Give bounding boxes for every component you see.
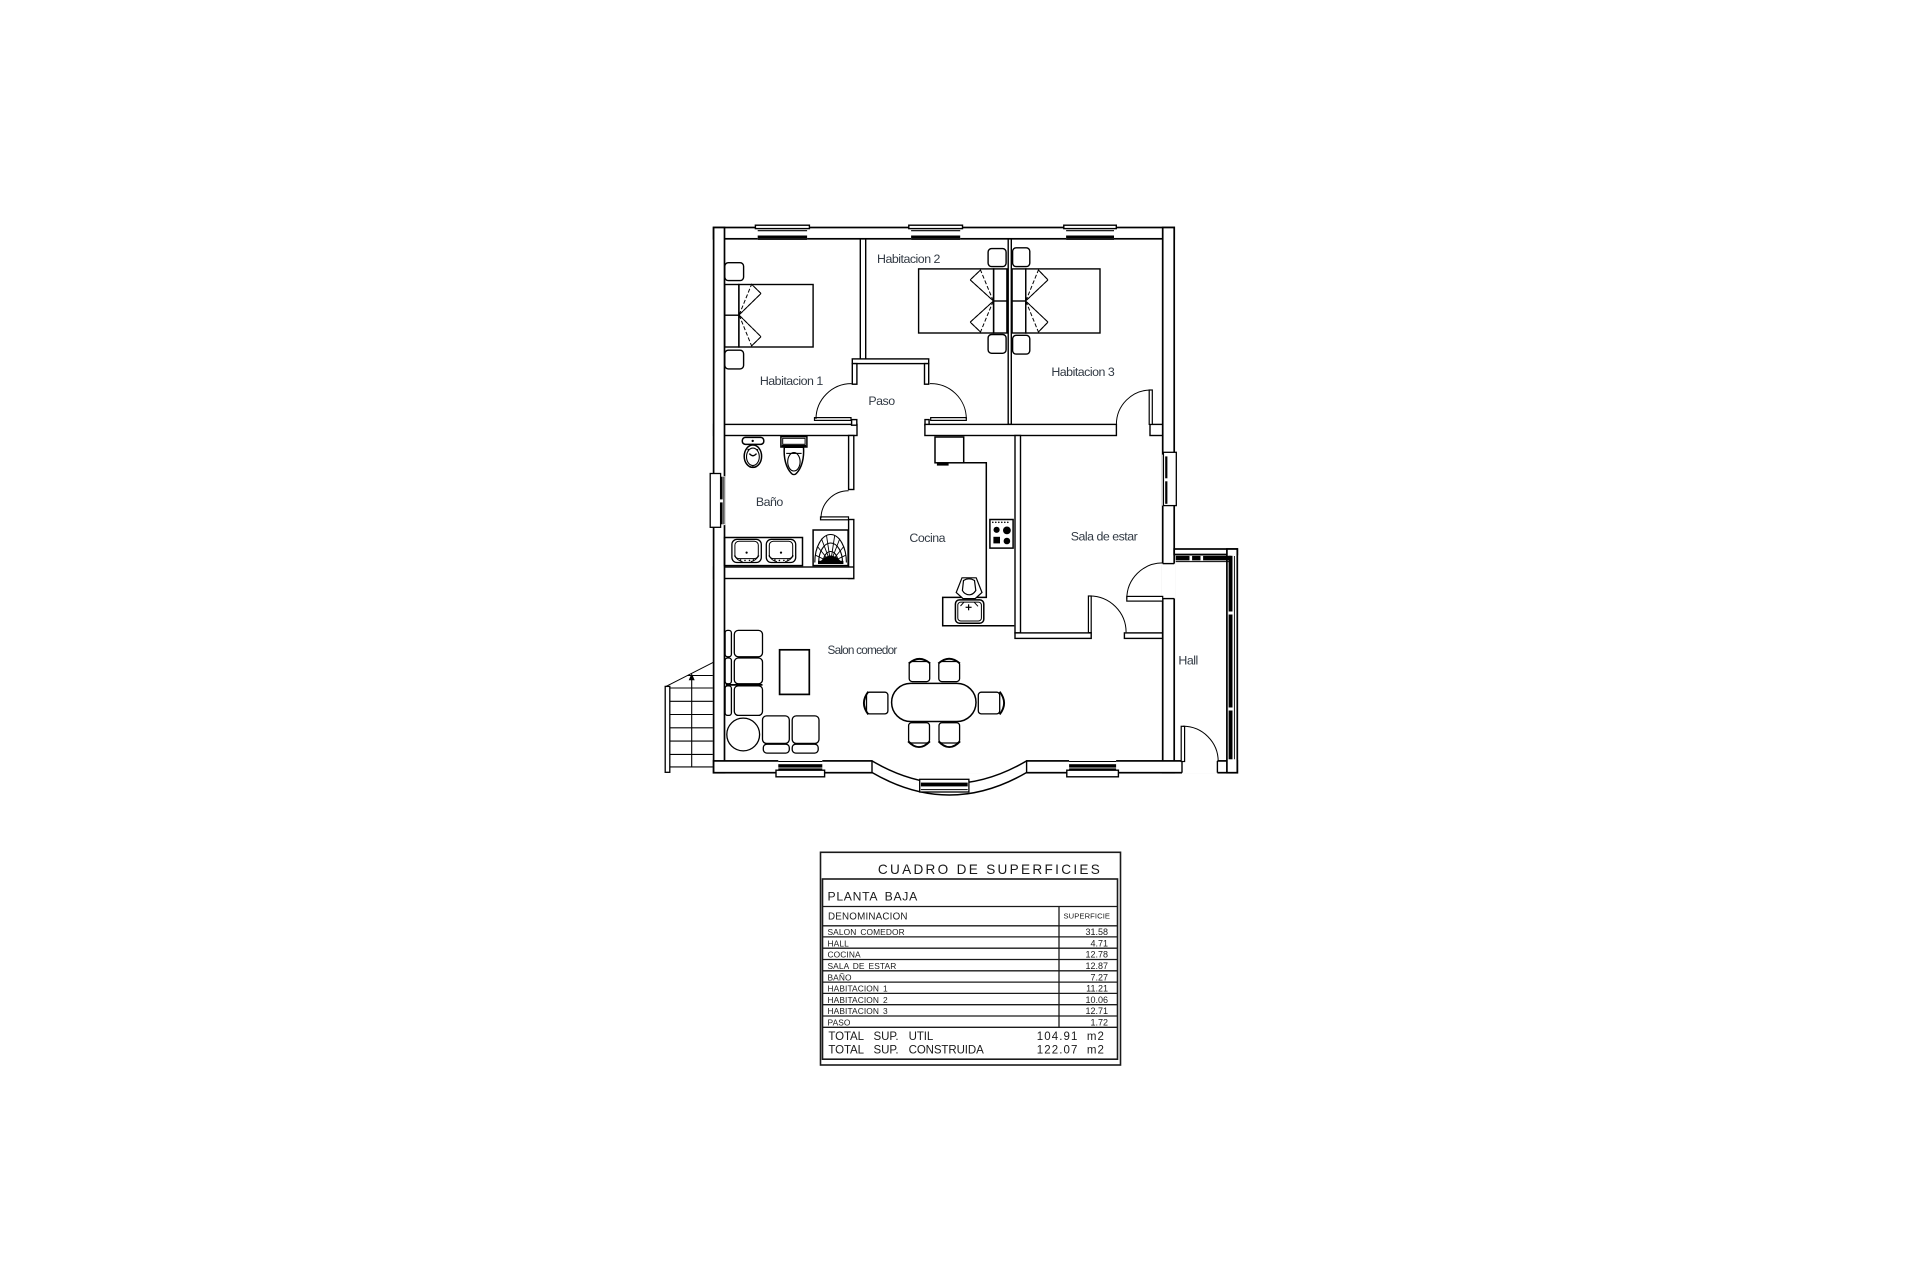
svg-text:10.06: 10.06: [1085, 995, 1108, 1005]
svg-text:TOTAL SUP. CONSTRUIDA: TOTAL SUP. CONSTRUIDA: [828, 1045, 984, 1057]
svg-text:Habitacion 2: Habitacion 2: [877, 252, 940, 266]
svg-text:12.71: 12.71: [1085, 1006, 1108, 1016]
svg-text:SUPERFICIE: SUPERFICIE: [1064, 911, 1111, 920]
svg-text:12.87: 12.87: [1085, 961, 1108, 971]
svg-text:4.71: 4.71: [1090, 938, 1108, 948]
svg-text:HABITACION 3: HABITACION 3: [828, 1006, 888, 1016]
svg-text:11.21: 11.21: [1086, 984, 1108, 994]
svg-text:HALL: HALL: [828, 938, 850, 948]
svg-text:122.07 m2: 122.07 m2: [1037, 1045, 1105, 1057]
svg-text:HABITACION 2: HABITACION 2: [828, 995, 888, 1005]
svg-text:TOTAL SUP. UTIL: TOTAL SUP. UTIL: [828, 1031, 933, 1043]
svg-text:Baño: Baño: [756, 495, 784, 509]
svg-text:1.72: 1.72: [1090, 1018, 1108, 1028]
svg-text:Habitacion 1: Habitacion 1: [760, 374, 823, 388]
svg-text:CUADRO DE SUPERFICIES: CUADRO DE SUPERFICIES: [878, 862, 1102, 877]
svg-text:Cocina: Cocina: [909, 531, 945, 545]
svg-text:12.78: 12.78: [1085, 950, 1108, 960]
svg-text:104.91 m2: 104.91 m2: [1037, 1031, 1105, 1043]
svg-text:COCINA: COCINA: [828, 950, 861, 960]
svg-text:SALA DE ESTAR: SALA DE ESTAR: [828, 961, 897, 971]
svg-text:BAÑO: BAÑO: [828, 972, 853, 982]
svg-text:Hall: Hall: [1178, 653, 1197, 667]
svg-text:PLANTA BAJA: PLANTA BAJA: [828, 890, 919, 904]
svg-text:DENOMINACION: DENOMINACION: [828, 911, 908, 922]
svg-text:PASO: PASO: [828, 1018, 851, 1028]
svg-text:Paso: Paso: [868, 394, 895, 408]
svg-text:Salon comedor: Salon comedor: [828, 643, 898, 657]
svg-text:31.58: 31.58: [1085, 927, 1108, 937]
svg-text:HABITACION 1: HABITACION 1: [828, 984, 888, 994]
svg-text:SALON COMEDOR: SALON COMEDOR: [828, 927, 905, 937]
svg-text:Habitacion 3: Habitacion 3: [1051, 365, 1114, 379]
svg-text:Sala de estar: Sala de estar: [1071, 530, 1138, 544]
svg-text:7.27: 7.27: [1090, 972, 1108, 982]
